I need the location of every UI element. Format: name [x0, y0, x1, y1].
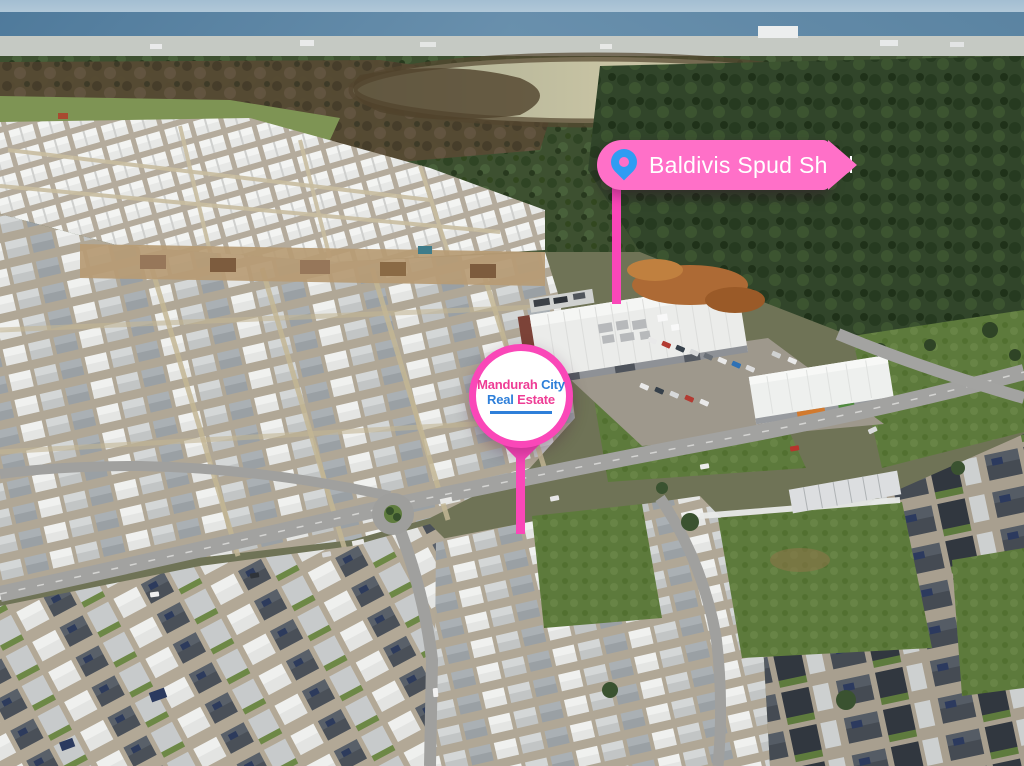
- logo-word-city: City: [541, 377, 565, 392]
- logo-word-real: Real: [487, 392, 514, 407]
- logo-word-mandurah: Mandurah: [477, 377, 538, 392]
- spud-shed-pointer-line: [612, 184, 621, 304]
- logo-word-estate: Estate: [517, 392, 555, 407]
- banner-arrow-point: [828, 140, 857, 190]
- location-pin-icon: [606, 144, 643, 181]
- agency-logo-badge: Mandurah City Real Estate: [469, 344, 573, 448]
- agency-logo-pin: Mandurah City Real Estate: [469, 344, 573, 448]
- aerial-photo-stage: Baldivis Spud Shed Mandurah City Real Es…: [0, 0, 1024, 766]
- spud-shed-label: Baldivis Spud Shed: [649, 152, 854, 179]
- agency-logo-text: Mandurah City Real Estate: [477, 378, 565, 413]
- spud-shed-marker-banner: Baldivis Spud Shed: [597, 140, 830, 190]
- logo-underline: [490, 411, 552, 414]
